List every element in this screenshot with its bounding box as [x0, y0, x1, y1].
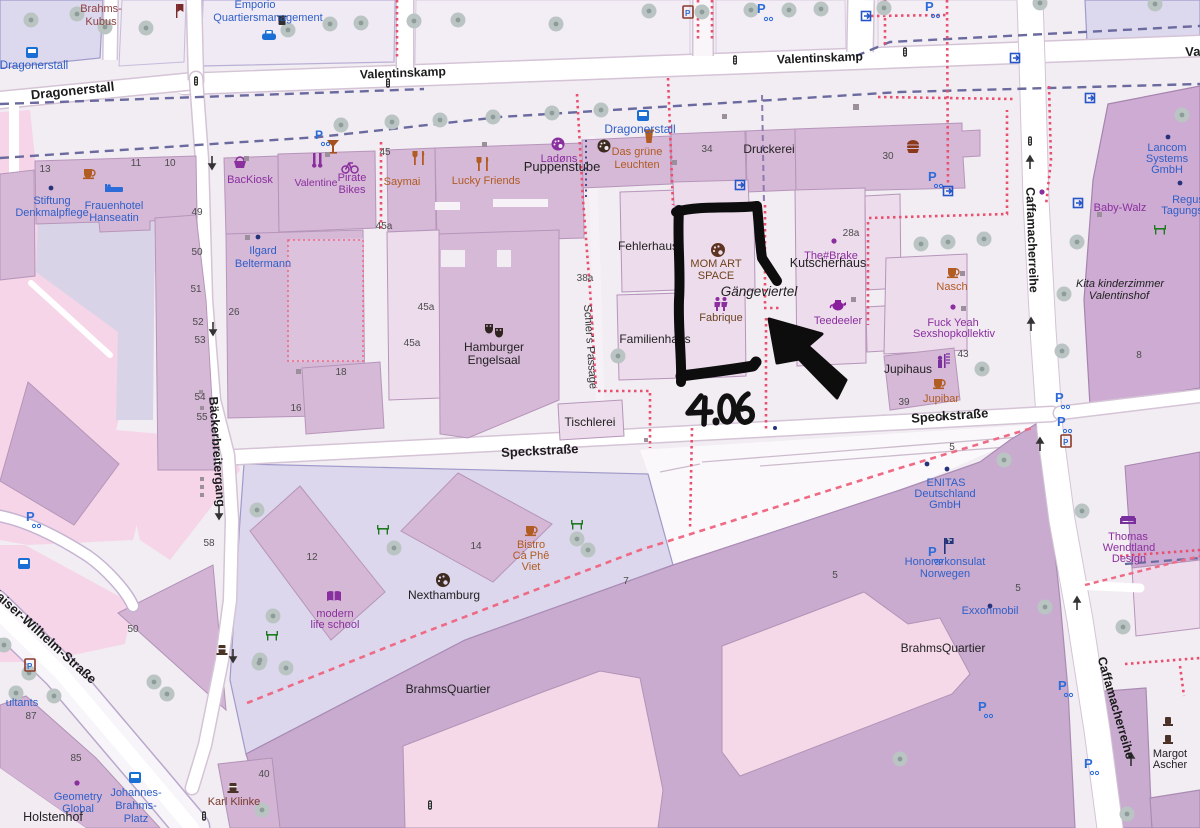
svg-text:26: 26	[228, 307, 240, 318]
svg-text:Beltermann: Beltermann	[235, 258, 291, 270]
svg-text:Honorarkonsulat: Honorarkonsulat	[905, 556, 986, 568]
svg-text:P: P	[978, 699, 987, 714]
svg-text:Engelsaal: Engelsaal	[468, 353, 521, 367]
svg-text:P: P	[1058, 678, 1067, 693]
svg-text:39: 39	[898, 397, 910, 408]
svg-text:Brahms-: Brahms-	[115, 800, 157, 812]
svg-text:GmbH: GmbH	[1151, 164, 1183, 176]
svg-text:52: 52	[192, 317, 204, 328]
svg-text:Design: Design	[1112, 553, 1146, 565]
svg-text:45a: 45a	[376, 221, 393, 232]
svg-text:Ilgard: Ilgard	[249, 245, 277, 257]
svg-text:Nasch: Nasch	[936, 281, 967, 293]
svg-text:54: 54	[194, 392, 206, 403]
svg-text:Holstenhof: Holstenhof	[23, 810, 83, 824]
svg-text:life school: life school	[311, 619, 360, 631]
svg-text:Hamburger: Hamburger	[464, 340, 524, 354]
svg-text:P: P	[1057, 414, 1066, 429]
svg-text:Brahms-: Brahms-	[80, 3, 122, 15]
svg-text:Stiftung: Stiftung	[33, 195, 70, 207]
svg-text:53: 53	[194, 335, 206, 346]
svg-text:Kutscherhaus: Kutscherhaus	[790, 256, 866, 270]
svg-text:Baby-Walz: Baby-Walz	[1094, 202, 1147, 214]
svg-text:Valentine: Valentine	[294, 177, 337, 189]
svg-text:51: 51	[190, 284, 202, 295]
svg-text:Sexshopkollektiv: Sexshopkollektiv	[913, 328, 995, 340]
svg-text:P: P	[757, 1, 766, 16]
svg-text:P: P	[685, 9, 691, 18]
svg-text:11: 11	[131, 158, 142, 169]
svg-text:Hanseatin: Hanseatin	[89, 212, 139, 224]
svg-text:Saymai: Saymai	[384, 176, 421, 188]
svg-text:Exxonmobil: Exxonmobil	[962, 605, 1019, 617]
svg-text:14: 14	[470, 541, 482, 552]
svg-text:Dragonerstall: Dragonerstall	[0, 60, 68, 72]
svg-text:5: 5	[832, 570, 838, 581]
svg-text:16: 16	[290, 403, 302, 414]
svg-text:Valentinshof: Valentinshof	[1089, 290, 1150, 302]
svg-text:45a: 45a	[418, 302, 435, 313]
svg-text:ultants: ultants	[6, 697, 39, 709]
svg-text:45a: 45a	[404, 338, 421, 349]
svg-text:8: 8	[1136, 350, 1142, 361]
svg-text:45: 45	[379, 147, 391, 158]
svg-text:Lucky Friends: Lucky Friends	[452, 175, 521, 187]
svg-text:P: P	[1063, 438, 1069, 447]
svg-text:38a: 38a	[577, 273, 594, 284]
svg-text:Puppenstube: Puppenstube	[524, 159, 601, 174]
svg-text:Va: Va	[1185, 44, 1200, 60]
svg-text:MOM ART: MOM ART	[690, 258, 741, 270]
svg-text:P: P	[1084, 756, 1093, 771]
svg-text:SPACE: SPACE	[698, 270, 734, 282]
svg-text:Frauenhotel: Frauenhotel	[85, 200, 144, 212]
svg-text:BacKiosk: BacKiosk	[227, 174, 273, 186]
svg-text:50: 50	[191, 247, 203, 258]
svg-text:Das grüne: Das grüne	[612, 146, 663, 158]
svg-text:Druckerei: Druckerei	[743, 142, 794, 156]
svg-text:P: P	[27, 662, 33, 671]
svg-text:28a: 28a	[843, 228, 860, 239]
svg-text:30: 30	[882, 151, 894, 162]
svg-text:5: 5	[1015, 583, 1021, 594]
svg-text:Quartiersmanagement: Quartiersmanagement	[213, 12, 322, 24]
svg-text:P: P	[1055, 390, 1064, 405]
svg-text:P: P	[928, 169, 937, 184]
svg-text:P: P	[925, 0, 934, 14]
svg-text:85: 85	[70, 753, 82, 764]
svg-text:58: 58	[203, 538, 215, 549]
svg-text:Jupihaus: Jupihaus	[884, 362, 932, 376]
svg-text:Emporio: Emporio	[235, 0, 276, 11]
svg-text:18: 18	[335, 367, 347, 378]
svg-text:13: 13	[39, 164, 51, 175]
svg-text:Bikes: Bikes	[339, 184, 366, 196]
svg-text:Karl Klinke: Karl Klinke	[208, 796, 261, 808]
svg-text:Platz: Platz	[124, 813, 148, 825]
svg-text:Leuchten: Leuchten	[614, 159, 659, 171]
svg-text:Fabrique: Fabrique	[699, 312, 742, 324]
svg-text:Pirate: Pirate	[338, 172, 367, 184]
svg-text:12: 12	[306, 552, 318, 563]
svg-text:BrahmsQuartier: BrahmsQuartier	[406, 682, 491, 696]
svg-text:10: 10	[164, 158, 176, 169]
svg-text:Gängeviertel: Gängeviertel	[721, 284, 799, 299]
svg-text:Kita kinderzimmer: Kita kinderzimmer	[1076, 278, 1165, 290]
svg-text:GmbH: GmbH	[929, 499, 961, 511]
svg-text:Denkmalpflege: Denkmalpflege	[15, 207, 88, 219]
svg-text:Jupibar: Jupibar	[923, 393, 959, 405]
svg-text:Teedeeler: Teedeeler	[814, 315, 863, 327]
svg-text:Fehlerhaus: Fehlerhaus	[618, 239, 678, 253]
svg-text:7: 7	[623, 576, 629, 587]
svg-text:Viet: Viet	[522, 561, 541, 573]
svg-text:Nexthamburg: Nexthamburg	[408, 588, 480, 602]
svg-text:Ascher: Ascher	[1153, 759, 1188, 771]
svg-text:Norwegen: Norwegen	[920, 568, 970, 580]
svg-text:40: 40	[258, 769, 270, 780]
svg-text:P: P	[315, 128, 323, 142]
svg-text:Dragonerstall: Dragonerstall	[604, 122, 675, 136]
svg-text:Johannes-: Johannes-	[110, 787, 162, 799]
svg-text:87: 87	[25, 711, 37, 722]
svg-text:BrahmsQuartier: BrahmsQuartier	[901, 641, 986, 655]
svg-text:43: 43	[957, 349, 969, 360]
svg-text:P: P	[26, 509, 35, 524]
svg-text:Tagungsräu: Tagungsräu	[1161, 205, 1200, 217]
svg-text:50: 50	[127, 624, 139, 635]
svg-text:Geometry: Geometry	[54, 791, 103, 803]
svg-text:Kubus: Kubus	[85, 16, 117, 28]
svg-text:5: 5	[949, 442, 955, 453]
svg-text:Tischlerei: Tischlerei	[565, 415, 616, 429]
svg-text:49: 49	[191, 207, 203, 218]
svg-text:55: 55	[196, 412, 208, 423]
svg-text:34: 34	[701, 144, 713, 155]
